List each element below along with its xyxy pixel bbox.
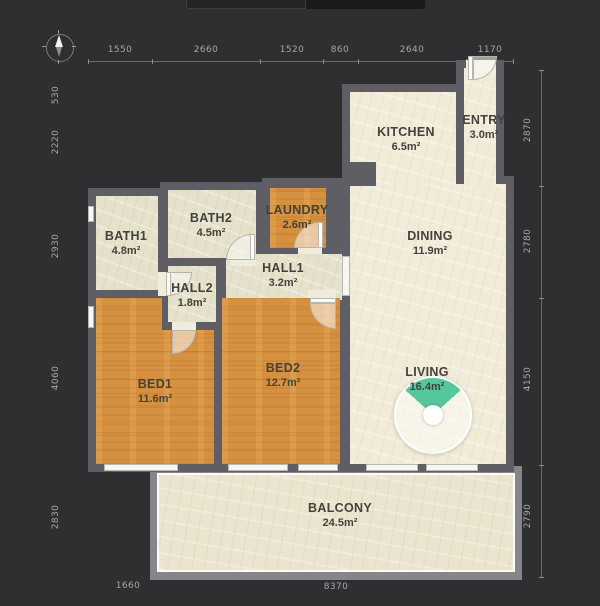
room-name: BED1 [138,376,173,392]
room-area: 12.7m² [266,376,301,390]
compass-tick-w [42,46,46,47]
dim-left-2: 2930 [51,234,61,259]
room-name: LIVING [405,364,448,380]
room-name: DINING [407,228,453,244]
compass-tick-s [58,60,59,64]
opening-bed2 [308,290,336,298]
wall-kitchen-stub [350,162,376,186]
room-label-balcony: BALCONY 24.5m² [308,500,372,531]
room-area: 4.5m² [190,226,232,240]
dim-left-1: 2220 [51,130,61,155]
room-name: BATH1 [105,228,147,244]
floorplan-canvas: { "dimensions": { "top": ["1550", "2660"… [0,0,600,606]
dim-tick [323,59,324,64]
dim-left-4: 2830 [51,505,61,530]
dim-right-1: 2780 [523,229,533,254]
view-angle-center [423,405,443,425]
door-entry-leaf [468,56,473,80]
window-bed2-bottom-1 [228,464,288,471]
dim-tick [539,577,544,578]
room-name: HALL1 [262,260,304,276]
room-label-bed1: BED1 11.6m² [138,376,173,407]
room-name: HALL2 [171,280,213,296]
room-label-bath1: BATH1 4.8m² [105,228,147,259]
room-label-dining: DINING 11.9m² [407,228,453,259]
dim-tick [539,465,544,466]
room-area: 2.6m² [266,218,329,232]
dim-top-2: 1520 [280,45,305,55]
dim-bottom-1: 8370 [324,582,349,592]
dim-top-5: 1170 [478,45,503,55]
room-label-entry: ENTRY 3.0m² [462,112,505,143]
room-area: 3.2m² [262,276,304,290]
compass-needle-south [56,47,62,57]
room-area: 6.5m² [377,140,435,154]
room-label-kitchen: KITCHEN 6.5m² [377,124,435,155]
compass-icon [44,32,74,62]
room-label-bed2: BED2 12.7m² [266,360,301,391]
room-label-laundry: LAUNDRY 2.6m² [266,202,329,233]
opening-laundry [298,248,322,254]
top-bar-left [186,0,306,9]
dim-tick [88,59,89,64]
compass-tick-e [72,46,76,47]
room-name: KITCHEN [377,124,435,140]
dim-top-4: 2640 [400,45,425,55]
room-name: BATH2 [190,210,232,226]
balcony-door-1 [366,464,418,471]
opening-bed1 [172,322,196,330]
room-name: BED2 [266,360,301,376]
dim-tick [539,70,544,71]
room-label-hall2: HALL2 1.8m² [171,280,213,311]
dim-tick [539,298,544,299]
room-area: 24.5m² [308,516,372,530]
room-area: 16.4m² [405,380,448,394]
dim-left-0: 530 [51,86,61,104]
room-label-bath2: BATH2 4.5m² [190,210,232,241]
dim-top-1: 2660 [194,45,219,55]
dim-right-3: 2790 [523,504,533,529]
room-area: 3.0m² [462,128,505,142]
top-bar-right [306,0,425,9]
room-area: 1.8m² [171,296,213,310]
door-bath2-leaf [250,234,255,260]
dim-tick [260,59,261,64]
room-name: BALCONY [308,500,372,516]
window-bed1-bottom [104,464,178,471]
compass-needle-north [55,35,63,47]
dim-tick [152,59,153,64]
room-area: 4.8m² [105,244,147,258]
dim-right-0: 2870 [523,118,533,143]
room-area: 11.9m² [407,244,453,258]
compass-tick-n [58,30,59,34]
window-bed2-bottom-2 [298,464,338,471]
room-name: ENTRY [462,112,505,128]
room-name: LAUNDRY [266,202,329,218]
window-bed1-left [88,306,94,328]
room-label-living: LIVING 16.4m² [405,364,448,395]
dim-tick [358,59,359,64]
opening-hall1-dining [342,256,350,296]
dimension-line-right [541,70,542,578]
dim-right-2: 4150 [523,367,533,392]
dim-top-3: 860 [331,45,349,55]
dim-bottom-0: 1660 [116,581,141,591]
dim-left-3: 4060 [51,366,61,391]
dim-top-0: 1550 [108,45,133,55]
dim-tick [539,186,544,187]
window-bath1 [88,206,94,222]
door-bed2-leaf [310,298,336,303]
room-area: 11.6m² [138,392,173,406]
room-label-hall1: HALL1 3.2m² [262,260,304,291]
balcony-door-2 [426,464,478,471]
dim-tick [513,59,514,64]
